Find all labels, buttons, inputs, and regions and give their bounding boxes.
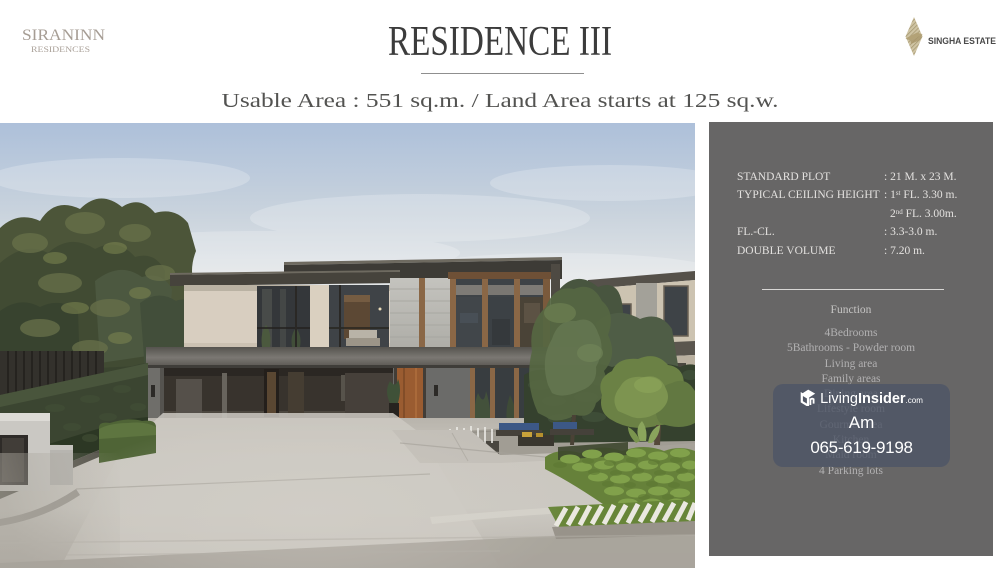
svg-text:Usable Area : 551 sq.m. / Land: Usable Area : 551 sq.m. / Land Area star… xyxy=(222,90,779,112)
svg-text:SIRANINN: SIRANINN xyxy=(22,27,105,44)
svg-text:SINGHA ESTATE: SINGHA ESTATE xyxy=(928,36,996,47)
svg-text:RESIDENCES: RESIDENCES xyxy=(31,45,90,54)
svg-text:RESIDENCE III: RESIDENCE III xyxy=(388,19,612,65)
